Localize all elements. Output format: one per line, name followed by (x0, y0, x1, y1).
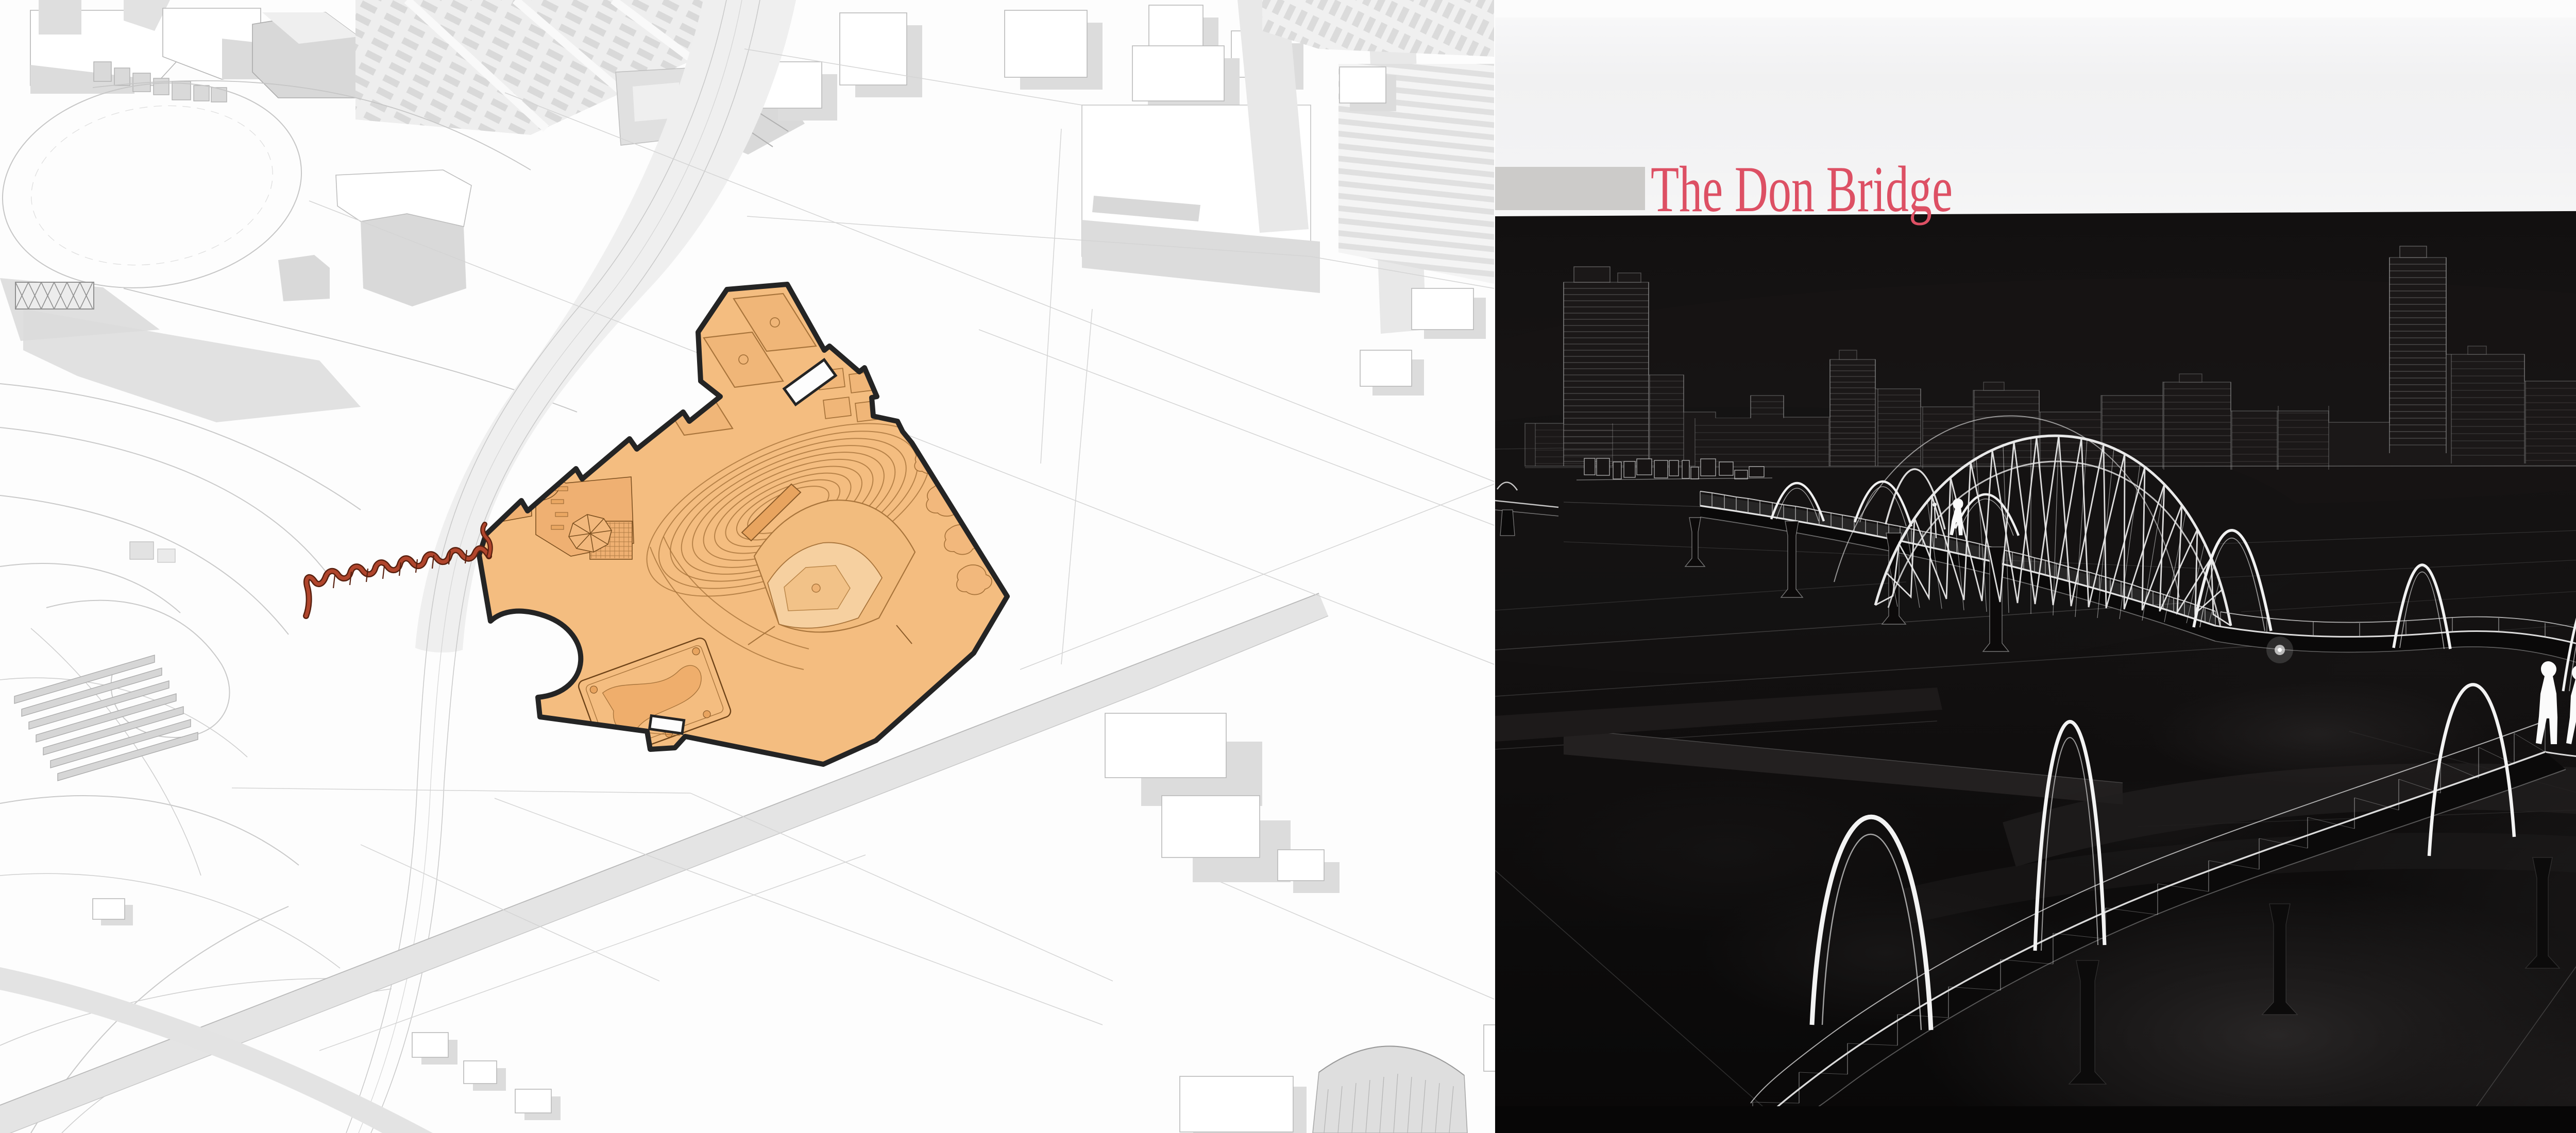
svg-text:The Don Bridge: The Don Bridge (1651, 153, 1953, 226)
